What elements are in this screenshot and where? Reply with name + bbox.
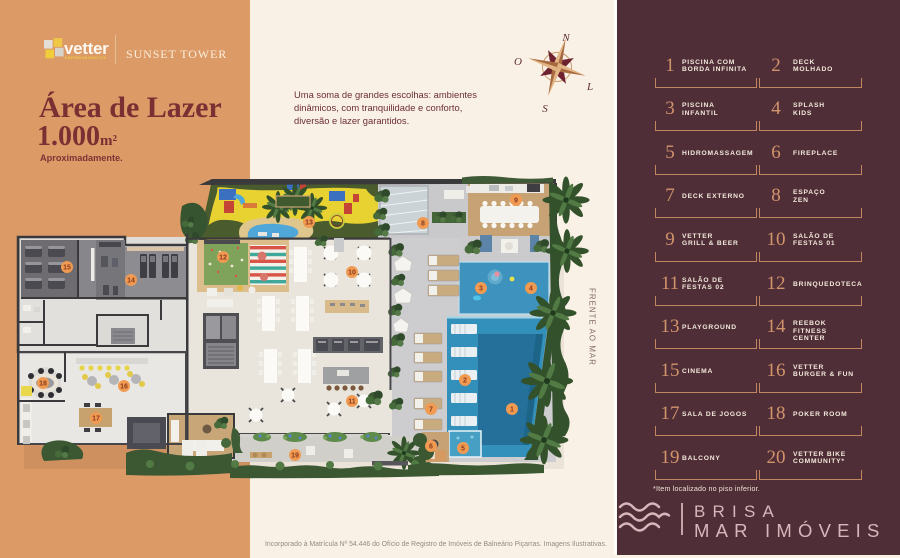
svg-text:14: 14 — [127, 278, 135, 285]
svg-text:6: 6 — [429, 444, 433, 451]
svg-text:17: 17 — [92, 416, 100, 423]
svg-text:19: 19 — [291, 453, 299, 460]
svg-text:5: 5 — [461, 446, 465, 453]
svg-text:2: 2 — [463, 378, 467, 385]
svg-text:12: 12 — [219, 255, 227, 262]
svg-text:13: 13 — [305, 220, 313, 227]
svg-text:18: 18 — [39, 381, 47, 388]
svg-text:FRENTE AO MAR: FRENTE AO MAR — [588, 288, 597, 366]
svg-text:3: 3 — [479, 286, 483, 293]
svg-text:9: 9 — [514, 198, 518, 205]
svg-text:8: 8 — [421, 221, 425, 228]
svg-text:1: 1 — [510, 407, 514, 414]
svg-text:10: 10 — [348, 270, 356, 277]
svg-text:4: 4 — [529, 286, 533, 293]
svg-text:15: 15 — [63, 265, 71, 272]
svg-text:7: 7 — [429, 407, 433, 414]
svg-text:16: 16 — [120, 384, 128, 391]
svg-text:11: 11 — [348, 399, 356, 406]
